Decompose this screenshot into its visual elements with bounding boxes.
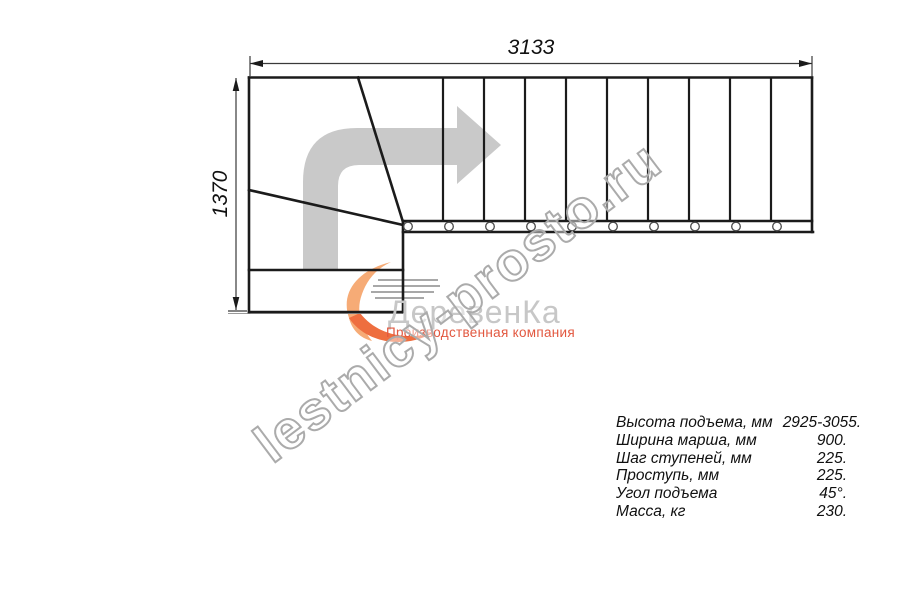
spec-row: Угол подъема 45°. xyxy=(616,485,847,503)
spec-label: Шаг ступеней, мм xyxy=(616,450,752,468)
baluster-circle-icon xyxy=(404,222,413,231)
spec-label: Ширина марша, мм xyxy=(616,432,757,450)
spec-label: Высота подъема, мм xyxy=(616,414,773,432)
baluster-circle-icon xyxy=(445,222,454,231)
spec-label: Угол подъема xyxy=(616,485,717,503)
baluster-circle-icon xyxy=(691,222,700,231)
baluster-circle-icon xyxy=(486,222,495,231)
spec-row: Проступь, мм 225. xyxy=(616,467,847,485)
spec-row: Высота подъема, мм 2925-3055. xyxy=(616,414,847,432)
spec-label: Проступь, мм xyxy=(616,467,719,485)
spec-row: Ширина марша, мм 900. xyxy=(616,432,847,450)
spec-value: 225. xyxy=(817,450,847,468)
spec-label: Масса, кг xyxy=(616,503,685,521)
height-dimension-label: 1370 xyxy=(209,170,232,217)
spec-table: Высота подъема, мм 2925-3055. Ширина мар… xyxy=(616,414,847,521)
spec-value: 230. xyxy=(817,503,847,521)
spec-value: 2925-3055. xyxy=(783,414,861,432)
baluster-circle-icon xyxy=(732,222,741,231)
baluster-circle-icon xyxy=(650,222,659,231)
spec-row: Масса, кг 230. xyxy=(616,503,847,521)
spec-value: 225. xyxy=(817,467,847,485)
spec-row: Шаг ступеней, мм 225. xyxy=(616,450,847,468)
spec-value: 45°. xyxy=(819,485,847,503)
baluster-circle-icon xyxy=(773,222,782,231)
stair-drawing-page: 3133 1370 ДеревенКа Производственная ком… xyxy=(0,0,900,600)
spec-value: 900. xyxy=(817,432,847,450)
width-dimension-label: 3133 xyxy=(508,36,555,59)
